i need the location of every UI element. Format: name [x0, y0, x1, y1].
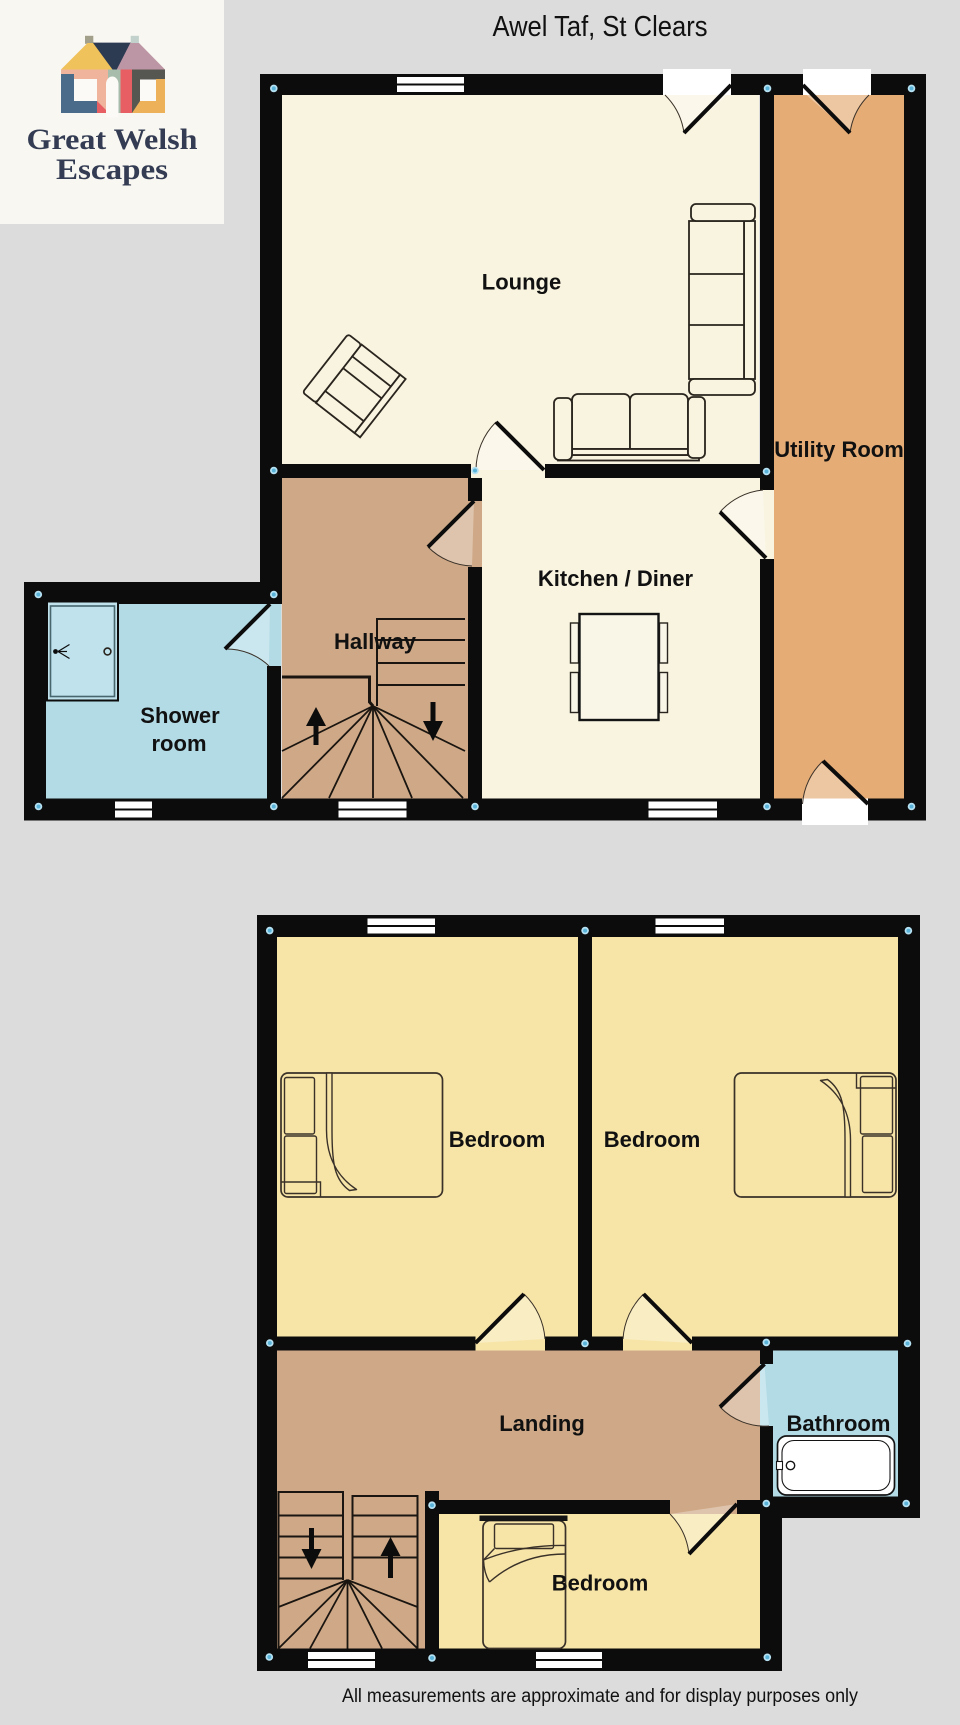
svg-text:Great Welsh: Great Welsh — [27, 123, 198, 156]
svg-text:Utility Room: Utility Room — [774, 437, 904, 462]
svg-text:Awel Taf, St Clears: Awel Taf, St Clears — [493, 11, 708, 43]
svg-text:Lounge: Lounge — [482, 270, 561, 295]
svg-text:Bathroom: Bathroom — [787, 1411, 891, 1436]
svg-text:Shower: Shower — [140, 703, 220, 728]
svg-text:All measurements are approxima: All measurements are approximate and for… — [342, 1686, 858, 1707]
svg-text:Hallway: Hallway — [334, 629, 417, 654]
svg-text:Escapes: Escapes — [56, 153, 168, 186]
svg-text:Kitchen / Diner: Kitchen / Diner — [538, 566, 694, 591]
svg-text:room: room — [152, 731, 207, 756]
svg-text:Bedroom: Bedroom — [449, 1127, 546, 1152]
svg-text:Bedroom: Bedroom — [604, 1127, 701, 1152]
svg-text:Bedroom: Bedroom — [552, 1571, 649, 1596]
svg-text:Landing: Landing — [499, 1411, 585, 1436]
